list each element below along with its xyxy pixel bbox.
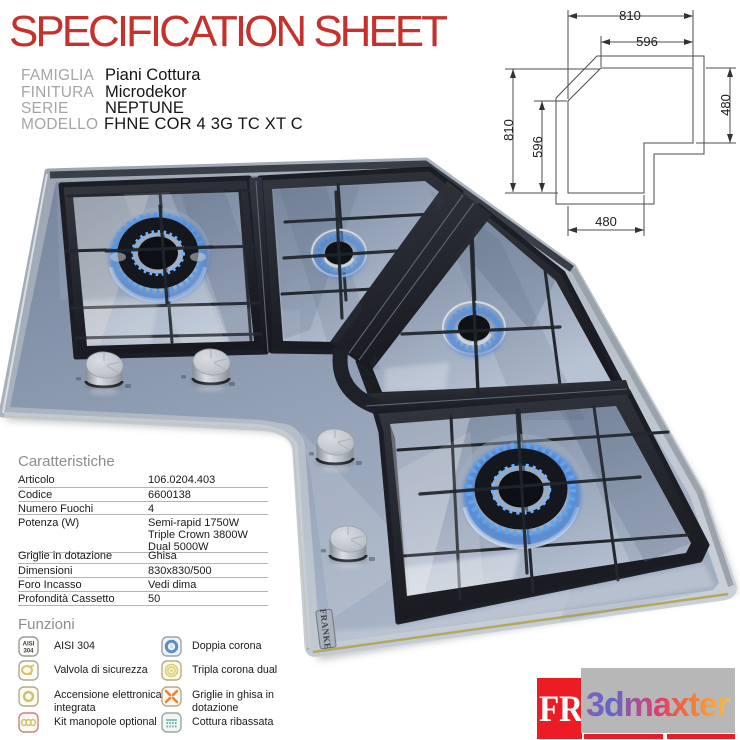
svg-text:AISI: AISI bbox=[23, 642, 35, 648]
svg-text:304: 304 bbox=[23, 649, 34, 655]
